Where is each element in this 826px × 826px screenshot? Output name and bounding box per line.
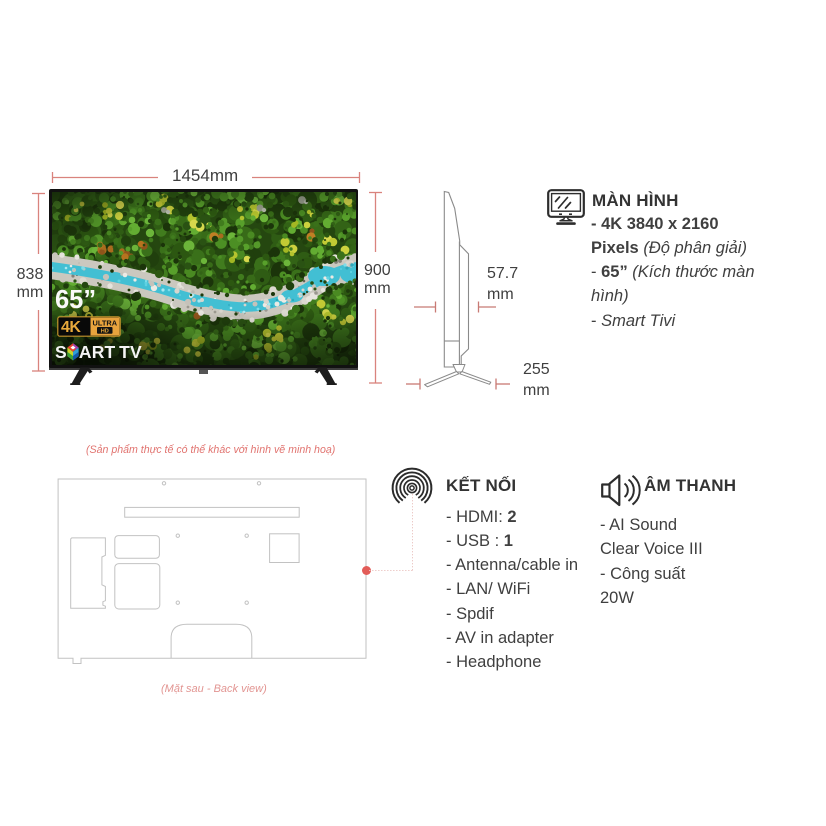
svg-text:4K: 4K (61, 319, 81, 336)
svg-text:HD: HD (101, 328, 109, 334)
svg-text:ULTRA: ULTRA (93, 318, 118, 327)
